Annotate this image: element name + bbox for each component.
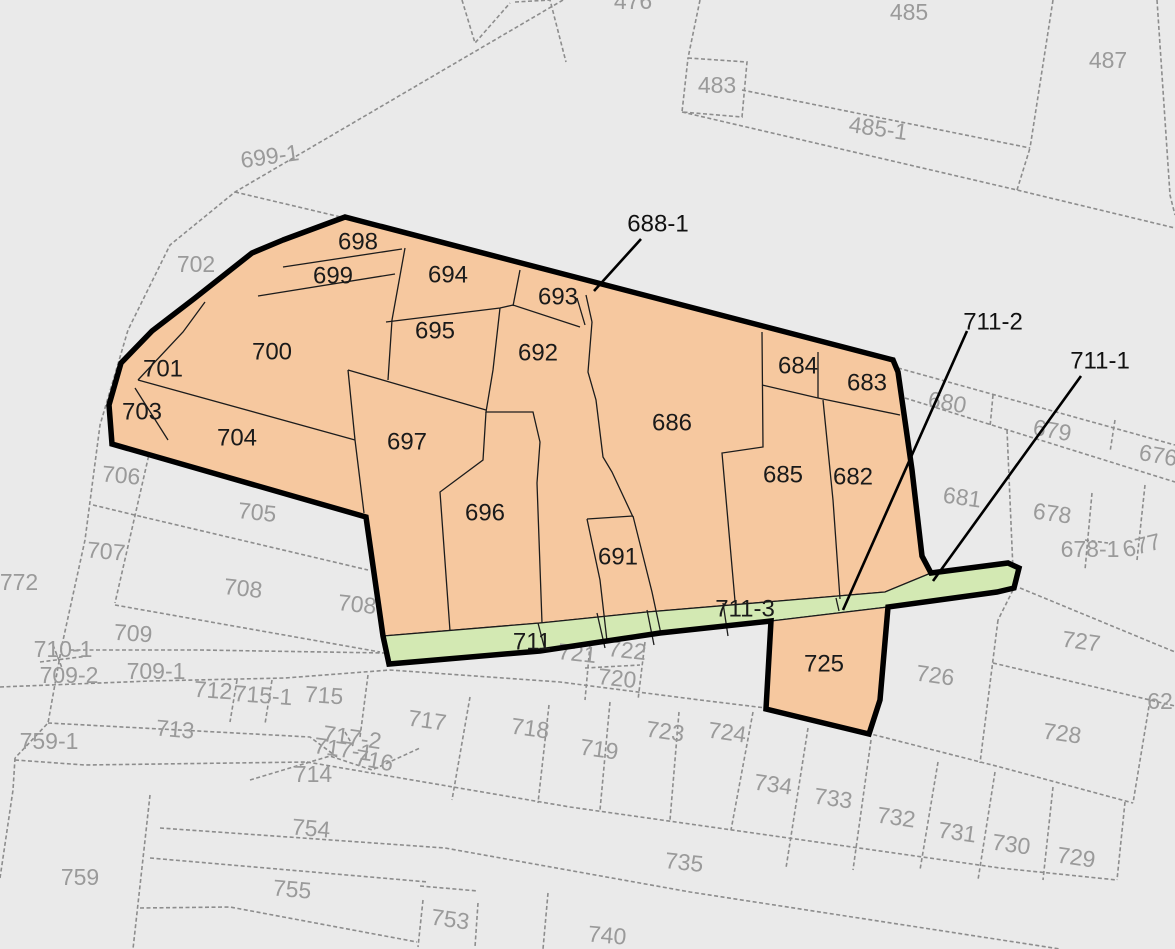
parcel-label-711-3: 711-3 xyxy=(715,595,775,622)
parcel-label-487: 487 xyxy=(1089,47,1127,73)
parcel-label-698: 698 xyxy=(338,228,378,255)
parcel-label-705: 705 xyxy=(237,497,278,527)
parcel-label-709-1: 709-1 xyxy=(127,658,186,684)
parcel-label-715: 715 xyxy=(304,681,344,710)
parcel-label-759-1: 759-1 xyxy=(20,728,79,754)
parcel-label-733: 733 xyxy=(812,783,854,814)
parcel-label-702: 702 xyxy=(177,251,215,277)
parcel-label-709-2: 709-2 xyxy=(40,662,99,688)
parcel-label-683: 683 xyxy=(847,369,887,396)
parcel-label-732: 732 xyxy=(875,802,917,833)
parcel-label-720: 720 xyxy=(597,663,638,693)
parcel-label-681: 681 xyxy=(941,482,983,513)
parcel-label-731: 731 xyxy=(936,817,978,848)
parcel-label-725: 725 xyxy=(804,650,844,677)
parcel-label-712: 712 xyxy=(193,676,233,705)
parcel-label-483: 483 xyxy=(698,72,736,98)
parcel-label-694: 694 xyxy=(428,261,468,288)
parcel-label-695: 695 xyxy=(415,317,455,344)
cadastral-map-canvas: 476485487483485-1699-1702680679676681678… xyxy=(0,0,1175,949)
parcel-label-708: 708 xyxy=(223,573,264,603)
parcel-label-724: 724 xyxy=(706,717,748,748)
parcel-label-485: 485 xyxy=(890,0,928,25)
parcel-label-693: 693 xyxy=(538,283,578,310)
parcel-label-729: 729 xyxy=(1055,842,1097,873)
parcel-label-700: 700 xyxy=(252,338,292,365)
callout-label-688-1: 688-1 xyxy=(627,210,688,237)
parcel-label-684: 684 xyxy=(778,352,818,379)
parcel-label-697: 697 xyxy=(387,428,427,455)
parcel-label-754: 754 xyxy=(291,813,332,842)
parcel-label-686: 686 xyxy=(652,409,692,436)
parcel-label-685: 685 xyxy=(763,461,803,488)
parcel-label-723: 723 xyxy=(644,716,686,747)
parcel-label-719: 719 xyxy=(578,734,620,765)
parcel-label-759: 759 xyxy=(61,864,99,890)
parcel-label-62: 62 xyxy=(1147,688,1173,714)
parcel-label-678-1: 678-1 xyxy=(1061,536,1120,562)
parcel-label-691: 691 xyxy=(598,543,638,570)
parcel-label-718: 718 xyxy=(509,713,551,744)
parcel-label-696: 696 xyxy=(465,499,505,526)
parcel-label-717: 717 xyxy=(406,705,448,736)
parcel-label-678: 678 xyxy=(1031,498,1073,529)
parcel-label-708: 708 xyxy=(337,589,378,619)
parcel-label-715-1: 715-1 xyxy=(233,680,293,710)
parcel-label-727: 727 xyxy=(1060,626,1102,657)
parcel-label-703: 703 xyxy=(122,398,162,425)
parcel-label-753: 753 xyxy=(429,904,471,935)
parcel-label-730: 730 xyxy=(990,829,1032,860)
parcel-label-699: 699 xyxy=(313,262,353,289)
parcel-label-755: 755 xyxy=(272,874,312,903)
parcel-label-704: 704 xyxy=(217,424,257,451)
parcel-label-701: 701 xyxy=(143,355,183,382)
parcel-label-476: 476 xyxy=(614,0,652,14)
parcel-label-692: 692 xyxy=(518,339,558,366)
parcel-label-710-1: 710-1 xyxy=(34,636,93,662)
parcel-label-728: 728 xyxy=(1041,718,1083,749)
parcel-label-714: 714 xyxy=(294,761,333,787)
parcel-label-711: 711 xyxy=(513,628,551,655)
parcel-label-772: 772 xyxy=(0,569,38,595)
parcel-label-707: 707 xyxy=(86,536,126,565)
parcel-label-709: 709 xyxy=(113,619,153,648)
parcel-label-734: 734 xyxy=(752,769,794,800)
callout-label-711-2: 711-2 xyxy=(963,308,1023,335)
callout-label-711-1: 711-1 xyxy=(1070,347,1130,374)
cadastral-map: 476485487483485-1699-1702680679676681678… xyxy=(0,0,1175,949)
parcel-label-726: 726 xyxy=(914,660,956,691)
parcel-label-682: 682 xyxy=(833,463,873,490)
parcel-label-713: 713 xyxy=(155,714,195,743)
parcel-label-735: 735 xyxy=(664,847,705,877)
parcel-label-706: 706 xyxy=(101,460,141,489)
parcel-label-740: 740 xyxy=(587,920,627,949)
